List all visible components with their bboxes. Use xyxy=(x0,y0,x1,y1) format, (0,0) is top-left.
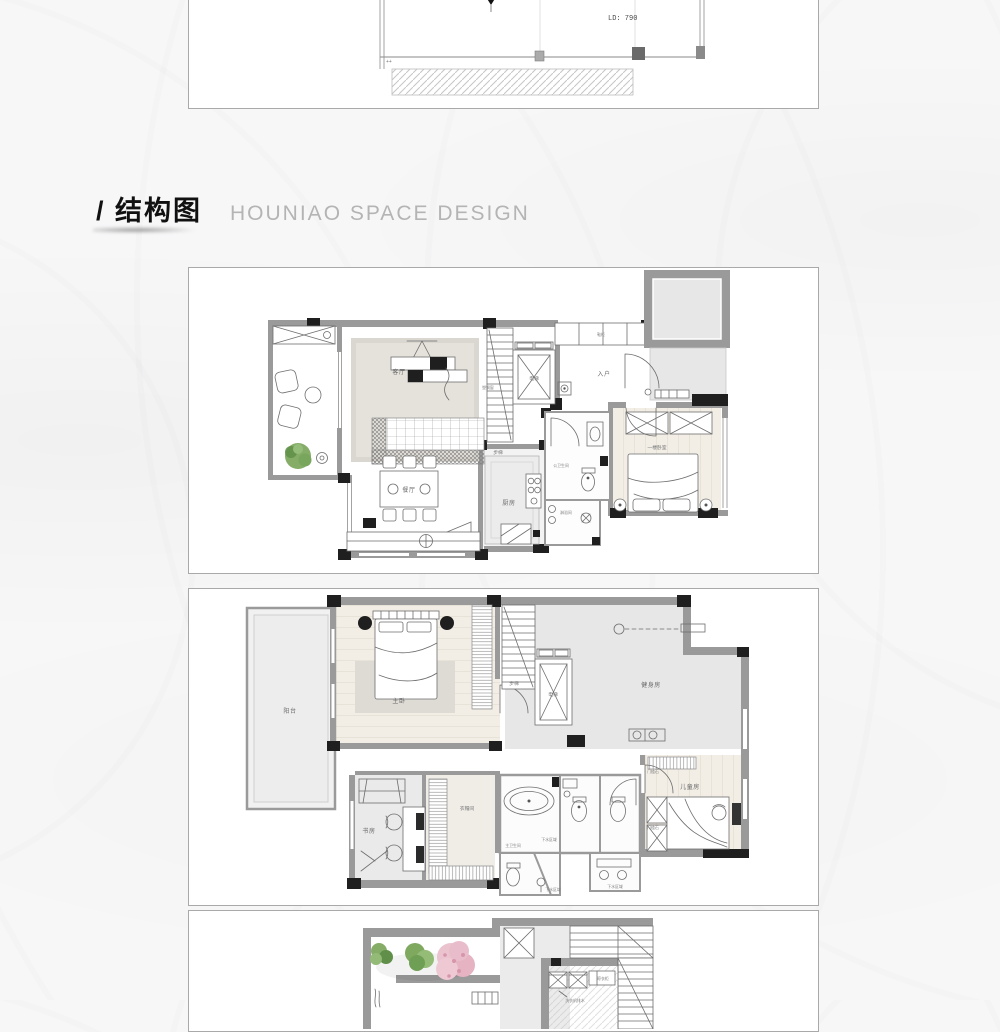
laundry-area: 晾衣柜 洗衣机排水 xyxy=(549,966,618,1029)
top-partial-plan: LD: 790 ++ xyxy=(189,0,818,108)
floorplan-3: 晾衣柜 洗衣机排水 xyxy=(189,911,818,1029)
study-label: 书房 xyxy=(362,827,375,835)
master-bathroom-label: 主卫生间 xyxy=(505,843,521,848)
threshold-label-1: 门槛石 xyxy=(647,769,659,774)
section-header: / 结构图 HOUNIAO SPACE DESIGN xyxy=(96,189,530,228)
drain-note-2: 下水区域 xyxy=(545,887,561,892)
public-bathroom-label: 公卫生间 xyxy=(553,463,569,468)
dining-room: 餐厅 xyxy=(347,456,480,551)
stairs-label: 步梯 xyxy=(493,449,503,456)
section-title-cn: / 结构图 xyxy=(96,189,202,228)
stove-icon xyxy=(526,474,541,508)
roof-door xyxy=(472,992,498,1004)
section-title-en: HOUNIAO SPACE DESIGN xyxy=(230,202,530,226)
floorplan-3-panel: 晾衣柜 洗衣机排水 xyxy=(188,910,819,1032)
living-room: 客厅 xyxy=(351,338,484,464)
roof-plants xyxy=(370,941,475,1007)
terrace xyxy=(273,326,335,469)
plant-icon xyxy=(285,443,328,469)
washer-drain-label: 洗衣机排水 xyxy=(565,998,585,1003)
drain-note-1: 下水区域 xyxy=(541,837,557,842)
shoe-cabinet-label: 鞋柜 xyxy=(597,332,605,337)
gym-label: 健身房 xyxy=(641,681,661,689)
master-bedroom-label: 主卧 xyxy=(392,697,405,705)
window-note-label: 塑钢窗 xyxy=(482,385,494,390)
master-bathroom-block: 主卫生间 下水区域 下水区域 下水区域 xyxy=(500,775,640,895)
cloakroom-label: 衣帽间 xyxy=(460,805,475,812)
sketch-plant xyxy=(375,989,380,1007)
threshold-label-2: 门槛石 xyxy=(647,825,659,830)
hatched-strip xyxy=(392,69,633,95)
floorplan-2-panel: 阳台 xyxy=(188,588,819,906)
kids-room-label: 儿童房 xyxy=(680,783,700,791)
balcony: 阳台 xyxy=(247,608,335,809)
corner-marks: ++ xyxy=(386,59,392,65)
ld-dimension-note: LD: 790 xyxy=(608,15,637,23)
bed xyxy=(628,454,698,512)
blossom-tree-icon xyxy=(436,941,475,980)
dining-room-label: 餐厅 xyxy=(402,486,415,494)
elevator-label: 电梯 xyxy=(529,375,539,382)
elevator-label-2: 电梯 xyxy=(548,691,558,698)
shower-room-label: 淋浴间 xyxy=(560,510,572,515)
title-underline-smear xyxy=(93,227,196,233)
top-partial-plan-panel: LD: 790 ++ xyxy=(188,0,819,109)
laundry-cabinet-label: 晾衣柜 xyxy=(597,976,609,981)
first-floor-bedroom: 一楼卧室 xyxy=(614,408,712,512)
drain-note-3: 下水区域 xyxy=(607,884,623,889)
shower-room: 淋浴间 xyxy=(545,500,600,545)
public-bathroom: 公卫生间 xyxy=(545,412,610,500)
skylight-box xyxy=(504,928,534,958)
entry-label: 入户 xyxy=(597,370,610,378)
floorplan-1: 客厅 电梯 步梯 塑钢窗 鞋柜 入户 xyxy=(189,268,818,573)
plan-fragment-walls xyxy=(380,0,705,69)
floorplan-2: 阳台 xyxy=(189,589,818,905)
kitchen: 厨房 xyxy=(485,456,541,544)
kitchen-label: 厨房 xyxy=(502,499,515,507)
section-title-text: / 结构图 xyxy=(96,196,202,226)
bedroom-label: 一楼卧室 xyxy=(647,444,666,451)
level-marker-icon xyxy=(483,0,505,12)
balcony-label: 阳台 xyxy=(283,707,296,715)
entry-hall: 鞋柜 入户 xyxy=(555,270,730,406)
master-wardrobe xyxy=(472,605,492,709)
floorplan-1-panel: 客厅 电梯 步梯 塑钢窗 鞋柜 入户 xyxy=(188,267,819,574)
stairs-label-2: 步梯 xyxy=(509,680,519,687)
living-room-label: 客厅 xyxy=(392,368,405,376)
